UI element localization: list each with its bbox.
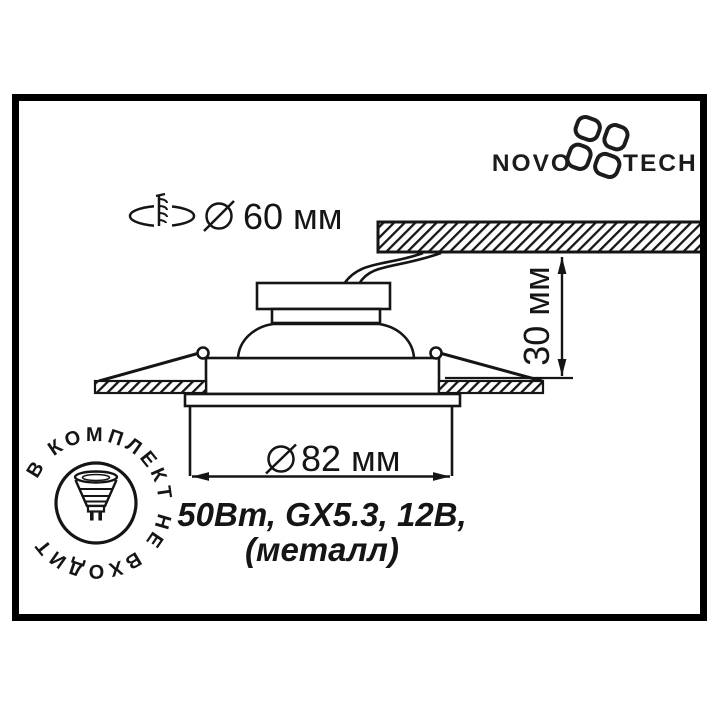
- lamp-pin-right: [98, 512, 102, 521]
- fixture-dome: [238, 324, 414, 358]
- cutout-dimension-label: 60 мм: [243, 196, 343, 237]
- specs-line2: (металл): [245, 531, 399, 568]
- body-diameter-label: 82 мм: [301, 438, 401, 479]
- lamp-pin-left: [90, 512, 94, 521]
- ceiling-panel: [378, 222, 704, 252]
- ceiling-bar-left: [95, 381, 206, 393]
- logo-text-left: NOVO: [492, 150, 572, 177]
- diagram-canvas: NOVO TECH 60 мм 30 мм: [0, 0, 720, 720]
- specs-line1: 50Вт, GX5.3, 12В,: [177, 496, 466, 533]
- clip-pivot-right: [431, 348, 442, 359]
- logo-text-right: TECH: [623, 150, 698, 177]
- fixture-neck: [272, 309, 380, 323]
- fixture-trim-ring: [206, 358, 439, 394]
- fixture-flange: [185, 394, 460, 406]
- technical-diagram: NOVO TECH 60 мм 30 мм: [0, 0, 720, 720]
- ceiling-bar-right: [439, 381, 543, 393]
- clip-pivot-left: [198, 348, 209, 359]
- terminal-block: [257, 283, 390, 309]
- depth-dimension-label: 30 мм: [516, 266, 557, 366]
